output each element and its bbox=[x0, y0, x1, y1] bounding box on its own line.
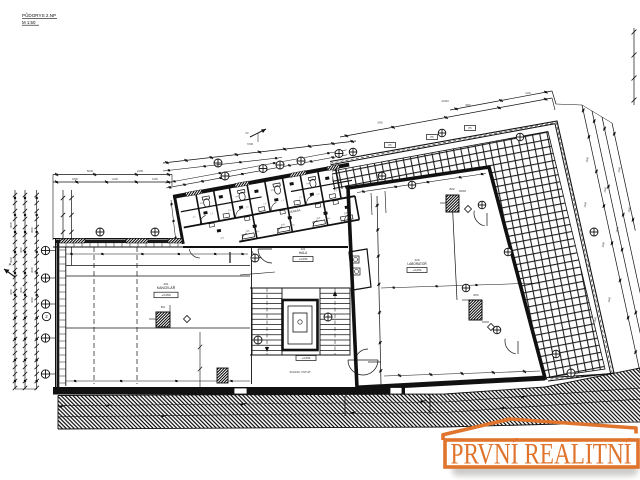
svg-text:802: 802 bbox=[449, 187, 454, 191]
svg-text:1800: 1800 bbox=[72, 177, 78, 181]
svg-text:1200: 1200 bbox=[525, 92, 531, 95]
svg-text:+3,050: +3,050 bbox=[413, 268, 422, 272]
svg-text:2100: 2100 bbox=[112, 177, 118, 181]
svg-text:LABORATOŘ: LABORATOŘ bbox=[407, 261, 427, 266]
svg-text:2400: 2400 bbox=[377, 122, 383, 125]
svg-text:+3,050: +3,050 bbox=[299, 257, 308, 261]
svg-text:KANCELÁŘ: KANCELÁŘ bbox=[157, 285, 176, 290]
svg-text:3600: 3600 bbox=[19, 287, 23, 293]
svg-text:803: 803 bbox=[473, 293, 478, 297]
svg-text:3600: 3600 bbox=[9, 222, 13, 228]
svg-text:1600: 1600 bbox=[152, 177, 158, 181]
svg-text:+3,050: +3,050 bbox=[302, 356, 311, 360]
svg-text:PŮDORYS 2.NP: PŮDORYS 2.NP bbox=[22, 12, 56, 18]
svg-text:3600: 3600 bbox=[30, 297, 34, 303]
svg-text:PRVNÍ REALITNÍ: PRVNÍ REALITNÍ bbox=[451, 438, 632, 471]
svg-text:HALA: HALA bbox=[299, 251, 308, 255]
svg-text:2400: 2400 bbox=[137, 169, 144, 173]
svg-text:3600: 3600 bbox=[19, 247, 23, 253]
svg-text:ULICE SOKOLOVSKÁ 25.8: ULICE SOKOLOVSKÁ 25.8 bbox=[349, 419, 386, 423]
svg-text:5000: 5000 bbox=[87, 169, 94, 173]
svg-text:4800: 4800 bbox=[465, 104, 471, 107]
svg-text:7200: 7200 bbox=[247, 142, 254, 146]
svg-text:M 1:50: M 1:50 bbox=[22, 20, 36, 25]
svg-text:3600: 3600 bbox=[30, 227, 34, 233]
svg-text:A: A bbox=[9, 262, 12, 267]
svg-text:SCHOD. VSTUP: SCHOD. VSTUP bbox=[290, 370, 311, 374]
svg-text:801: 801 bbox=[161, 305, 166, 309]
svg-text:+3,050: +3,050 bbox=[161, 293, 171, 297]
svg-text:3600: 3600 bbox=[30, 267, 34, 273]
svg-text:11340: 11340 bbox=[441, 99, 449, 103]
svg-text:3600: 3600 bbox=[9, 289, 13, 295]
